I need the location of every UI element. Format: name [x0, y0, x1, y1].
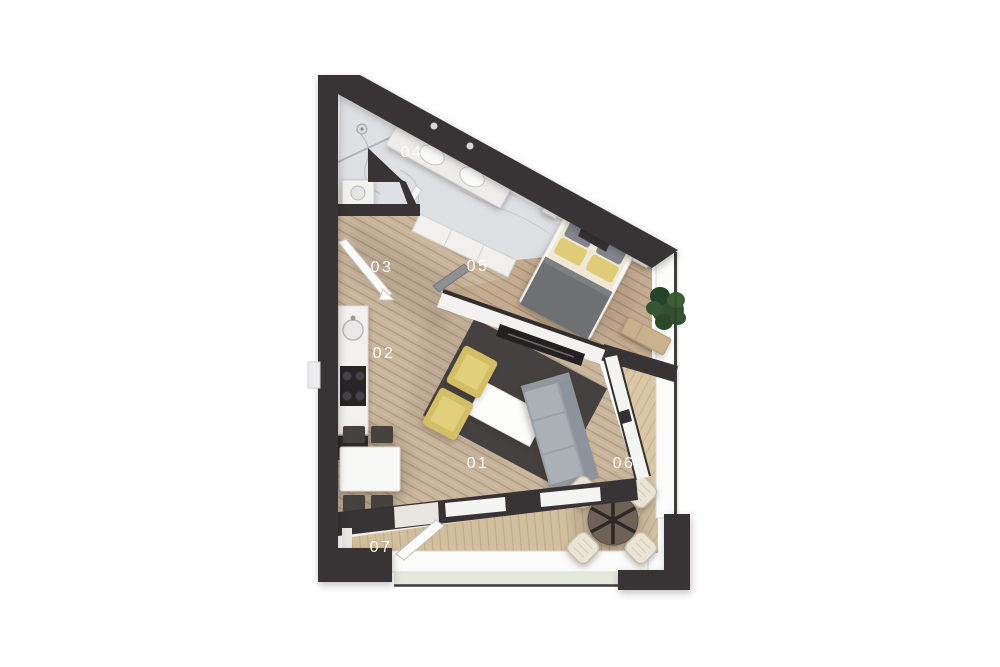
- room-label-hallway: 03: [371, 259, 394, 276]
- dining-table: [340, 447, 400, 491]
- room-label-bathroom: 04: [401, 144, 424, 161]
- wall-sconce: [431, 123, 438, 130]
- balcony-railing-bottom: [390, 551, 648, 586]
- room-label-bedroom: 05: [467, 258, 490, 275]
- wall-sconce: [467, 143, 474, 150]
- washing-machine: [342, 180, 374, 206]
- left-wall-window: [308, 362, 320, 388]
- room-label-kitchen: 02: [373, 345, 396, 362]
- floor-plan-canvas: 01 02 03 04 05 06 07: [0, 0, 1000, 667]
- room-label-balcony: 07: [370, 539, 393, 556]
- cooktop: [340, 366, 366, 406]
- floor-plan-drawing: 01 02 03 04 05 06 07: [0, 0, 1000, 667]
- kitchen-sink: [343, 320, 363, 340]
- room-label-living: 01: [467, 455, 490, 472]
- dining-chair: [371, 426, 393, 443]
- railing-glass: [394, 572, 646, 585]
- dining-chair: [343, 426, 365, 443]
- room-label-terrace: 06: [613, 455, 636, 472]
